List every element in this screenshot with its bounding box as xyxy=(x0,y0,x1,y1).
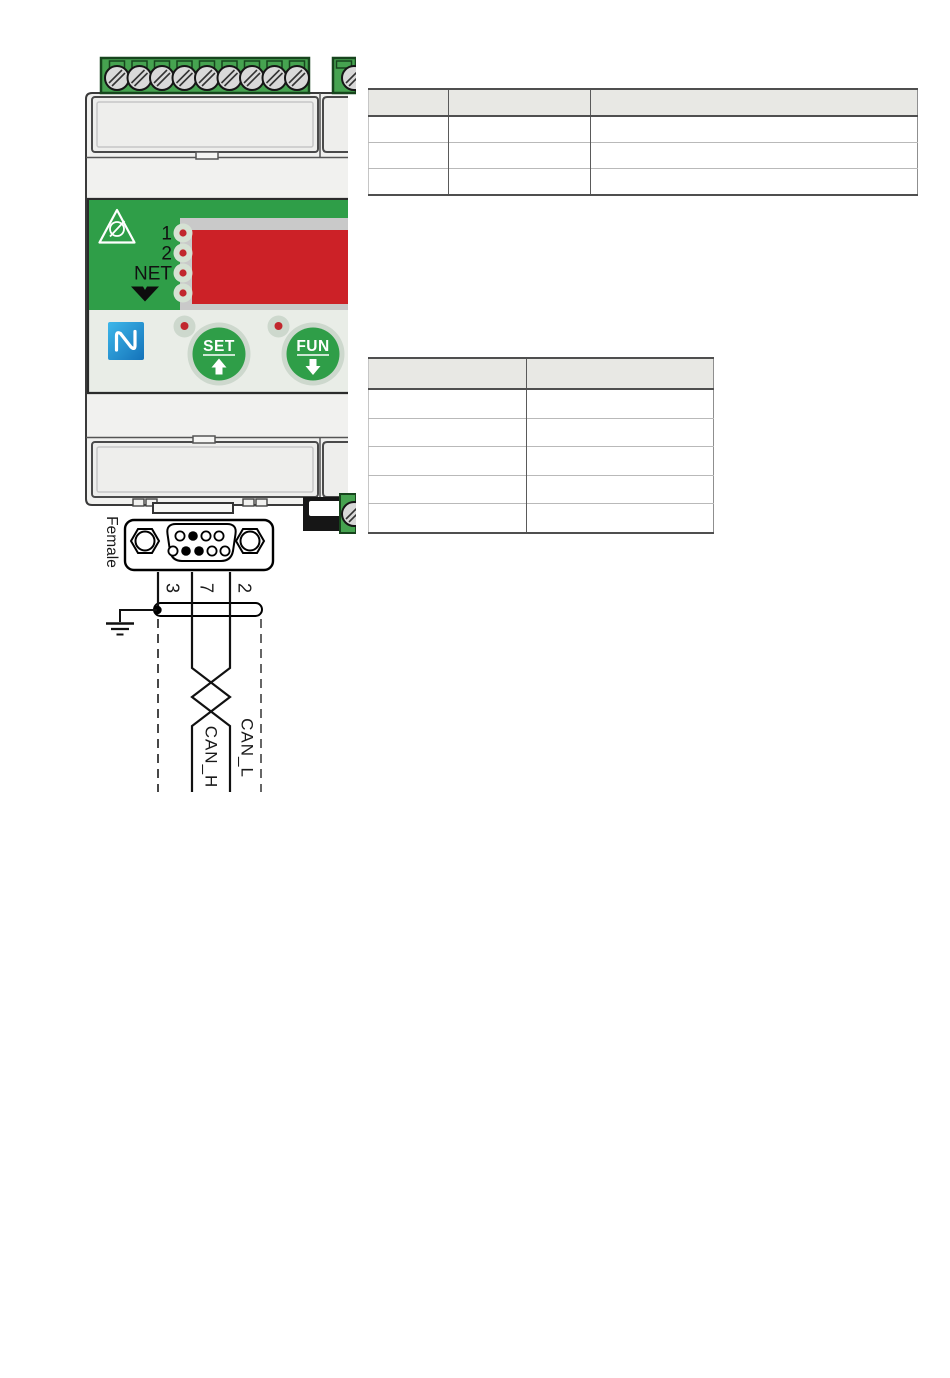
document-page: 1 2 NET SET xyxy=(0,0,950,1378)
pin xyxy=(175,531,184,540)
pin-filled xyxy=(188,531,198,541)
screw-icon xyxy=(342,502,356,526)
set-led xyxy=(181,322,189,330)
header-cell xyxy=(369,89,449,116)
table-cell xyxy=(527,389,714,418)
table-row xyxy=(369,475,714,504)
table-cell xyxy=(527,475,714,504)
pin-number-3: 3 xyxy=(163,583,183,593)
table-cell xyxy=(369,447,527,476)
led-label-2: 2 xyxy=(161,244,172,265)
header-cell xyxy=(449,89,591,116)
pin-description-table xyxy=(368,88,918,196)
bottom-label-window xyxy=(92,436,348,497)
connector-gender-label: Female xyxy=(103,516,120,568)
pin xyxy=(214,531,223,540)
pin-number-2: 2 xyxy=(235,583,255,593)
table-row xyxy=(369,169,918,196)
set-button-label: SET xyxy=(203,338,235,355)
header-cell xyxy=(369,358,527,389)
table-row xyxy=(369,116,918,143)
pin-filled xyxy=(194,546,204,556)
table-cell xyxy=(591,116,918,143)
screw-icon xyxy=(105,66,309,90)
table-cell xyxy=(369,389,527,418)
table-cell xyxy=(369,418,527,447)
table-row xyxy=(369,447,714,476)
table-cell xyxy=(527,447,714,476)
screw-hole-right xyxy=(236,529,264,553)
table-cell xyxy=(449,143,591,169)
table-cell xyxy=(449,169,591,196)
terminal-block-top xyxy=(101,58,309,93)
table-row xyxy=(369,143,918,169)
top-label-window xyxy=(92,97,348,159)
fun-led xyxy=(275,322,283,330)
led-label-net: NET xyxy=(134,264,172,285)
pin xyxy=(201,531,210,540)
pin xyxy=(168,546,177,555)
dsub9-connector-drawing xyxy=(125,520,273,570)
led-label-1: 1 xyxy=(161,224,172,245)
pin xyxy=(220,546,229,555)
pin-number-7: 7 xyxy=(197,583,217,593)
specification-table xyxy=(368,357,714,534)
table-cell xyxy=(369,475,527,504)
table-cell xyxy=(369,116,449,143)
can-wiring-diagram: 3 7 2 CAN_H CAN_L xyxy=(106,572,262,792)
fun-button-label: FUN xyxy=(296,338,329,355)
header-cell xyxy=(591,89,918,116)
screw-icon xyxy=(342,66,356,90)
table-header-row xyxy=(369,89,918,116)
table-row xyxy=(369,389,714,418)
device-illustration: 1 2 NET SET xyxy=(0,0,356,810)
pin xyxy=(207,546,216,555)
table-cell xyxy=(369,143,449,169)
table-cell xyxy=(527,504,714,533)
screw-hole-left xyxy=(131,529,159,553)
table-cell xyxy=(591,169,918,196)
wire-label-can-l: CAN_L xyxy=(238,718,257,778)
header-cell xyxy=(527,358,714,389)
table-row xyxy=(369,504,714,533)
table-cell xyxy=(591,143,918,169)
ground-icon xyxy=(106,610,157,635)
pin-filled xyxy=(181,546,191,556)
led-display xyxy=(192,230,348,304)
table-cell xyxy=(369,504,527,533)
wire-label-can-h: CAN_H xyxy=(202,726,221,789)
table-cell xyxy=(449,116,591,143)
terminal-block-bottom-right-partial xyxy=(340,494,356,533)
table-header-row xyxy=(369,358,714,389)
table-row xyxy=(369,418,714,447)
table-cell xyxy=(527,418,714,447)
nfc-icon xyxy=(108,322,144,360)
table-cell xyxy=(369,169,449,196)
cable-shield xyxy=(154,603,262,616)
terminal-block-top-right-partial xyxy=(333,58,356,93)
